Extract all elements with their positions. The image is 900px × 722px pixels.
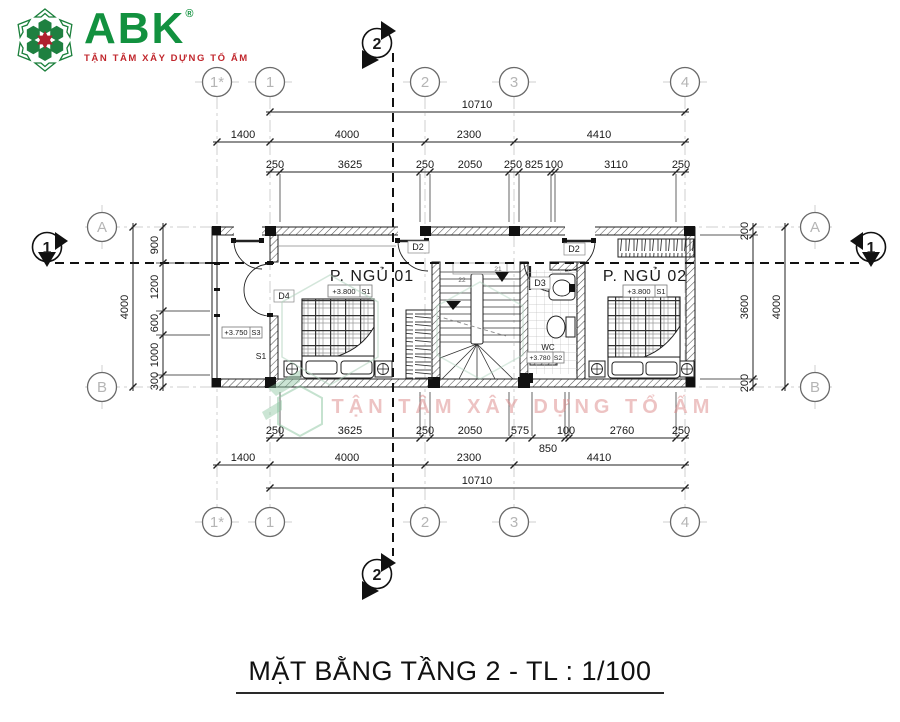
dim-label: 4000 (335, 452, 359, 464)
grid-label: 2 (421, 74, 429, 91)
dim-label: 2050 (458, 159, 482, 171)
grid-label: 3 (510, 514, 518, 531)
dimensions-top: 10710 1400 4000 2300 4410 250 3625 250 2… (213, 99, 690, 222)
drawing-title-text: MẶT BẰNG TẦNG 2 - TL : 1/100 (236, 656, 663, 694)
dim-label: 2300 (457, 452, 481, 464)
room-name: P. NGỦ 02 (603, 266, 687, 285)
grid-label: 4 (681, 514, 689, 531)
dim-label: 600 (149, 314, 161, 332)
room-finish: S3 (251, 328, 260, 337)
wardrobe (406, 310, 432, 379)
dim-label: 200 (739, 374, 751, 392)
stair-step-number: 21 (494, 266, 502, 273)
registered-mark-icon: ® (185, 9, 193, 20)
watermark-tagline: TẬN TÂM XÂY DỰNG TỔ ẤM (332, 394, 715, 418)
dim-label: 900 (149, 236, 161, 254)
wardrobe (618, 239, 694, 257)
dim-label: 2760 (610, 425, 634, 437)
section-number: 1 (867, 240, 876, 257)
room-finish: S1 (656, 287, 665, 296)
dim-label: 4410 (587, 452, 611, 464)
room-level: +3.780 (530, 355, 551, 362)
pillow (306, 361, 337, 374)
dim-label: 2050 (458, 425, 482, 437)
dim-label: 575 (511, 425, 529, 437)
dim-label: 100 (545, 159, 563, 171)
section-number: 2 (373, 36, 382, 53)
door-tag: D2 (568, 244, 580, 254)
dim-label: 1400 (231, 129, 255, 141)
door-tag: D3 (534, 278, 546, 288)
logo-mark-icon (14, 8, 76, 72)
dim-label: 3110 (604, 159, 628, 171)
dim-label: 250 (504, 159, 522, 171)
dim-label: 3625 (338, 159, 362, 171)
dim-label: 825 (525, 159, 543, 171)
grid-label: 1 (266, 74, 274, 91)
door-tag: D4 (278, 291, 290, 301)
stair-step-number: 22 (458, 277, 466, 284)
room-level: +3.800 (332, 287, 355, 296)
grid-label: 1* (210, 514, 224, 531)
section-markers: 2 2 1 1 (33, 21, 886, 600)
dim-label: 3600 (739, 295, 751, 319)
dim-label: 250 (672, 425, 690, 437)
dim-label: 4000 (335, 129, 359, 141)
dim-label: 250 (416, 159, 434, 171)
dim-label: 300 (149, 372, 161, 390)
room-finish: S2 (554, 355, 563, 362)
grid-label: 1 (266, 514, 274, 531)
dim-label: 250 (416, 425, 434, 437)
section-number: 1 (43, 240, 52, 257)
company-logo: ABK ® TẬN TÂM XÂY DỰNG TỔ ẤM (14, 8, 249, 72)
grid-label: B (97, 379, 107, 396)
grid-label: A (97, 219, 107, 236)
section-number: 2 (373, 567, 382, 584)
dimensions-left: 4000 900 1200 600 1000 300 (119, 223, 210, 391)
grid-label: 1* (210, 74, 224, 91)
grid-label: 3 (510, 74, 518, 91)
door-tag: D2 (412, 242, 424, 252)
pillow (612, 362, 643, 375)
dim-label: 4000 (119, 295, 131, 319)
dim-label: 2300 (457, 129, 481, 141)
room-level: +3.750 (224, 328, 247, 337)
dim-label: 4000 (771, 295, 783, 319)
dim-label: 250 (672, 159, 690, 171)
drawing-title: MẶT BẰNG TẦNG 2 - TL : 1/100 (0, 656, 900, 687)
dim-label: 4410 (587, 129, 611, 141)
floor-plan-drawing: 1* 1 2 3 4 1* 1 2 3 4 A B A B (0, 0, 900, 717)
pillow (646, 362, 677, 375)
bedroom1-furniture (284, 299, 432, 379)
dim-label: 250 (266, 159, 284, 171)
dimensions-right: 200 3600 200 4000 (700, 222, 789, 392)
dim-label: 100 (557, 425, 575, 437)
dim-label: 850 (539, 443, 557, 455)
dim-label: 200 (739, 222, 751, 240)
grid-label: 4 (681, 74, 689, 91)
dim-label: 3625 (338, 425, 362, 437)
floor-tag: S1 (256, 351, 267, 361)
toilet-icon (547, 316, 565, 338)
dim-label: 10710 (462, 99, 493, 111)
grid-label: B (810, 379, 820, 396)
room-level: +3.800 (627, 287, 650, 296)
logo-tagline: TẬN TÂM XÂY DỰNG TỔ ẤM (84, 53, 249, 64)
dim-label: 10710 (462, 475, 493, 487)
logo-name: ABK (84, 8, 185, 50)
grid-label: A (810, 219, 820, 236)
dim-label: 1400 (231, 452, 255, 464)
grid-label: 2 (421, 514, 429, 531)
dim-label: 1200 (149, 275, 161, 299)
room-name: WC (541, 343, 555, 352)
bedroom2-furniture (589, 239, 694, 378)
dim-label: 1000 (149, 343, 161, 367)
